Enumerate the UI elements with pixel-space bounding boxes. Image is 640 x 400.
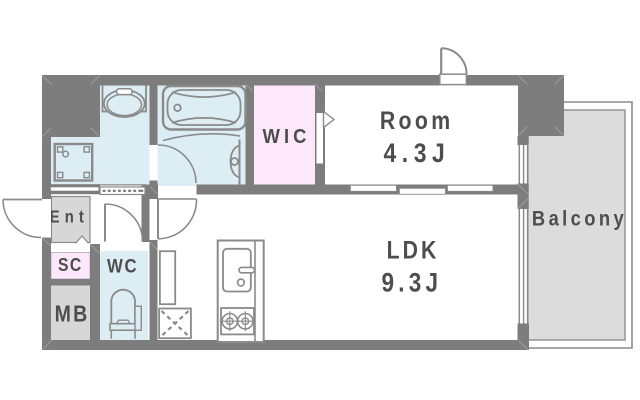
svg-text:Balcony: Balcony (532, 207, 627, 231)
svg-text:WC: WC (107, 254, 138, 277)
svg-text:LDK: LDK (387, 236, 440, 264)
svg-text:4.3J: 4.3J (384, 138, 451, 168)
svg-text:Ent: Ent (50, 207, 89, 226)
svg-text:MB: MB (55, 301, 90, 327)
svg-text:SC: SC (58, 254, 83, 276)
svg-text:9.3J: 9.3J (381, 269, 442, 298)
svg-text:WIC: WIC (262, 125, 310, 148)
svg-text:Room: Room (380, 106, 454, 134)
